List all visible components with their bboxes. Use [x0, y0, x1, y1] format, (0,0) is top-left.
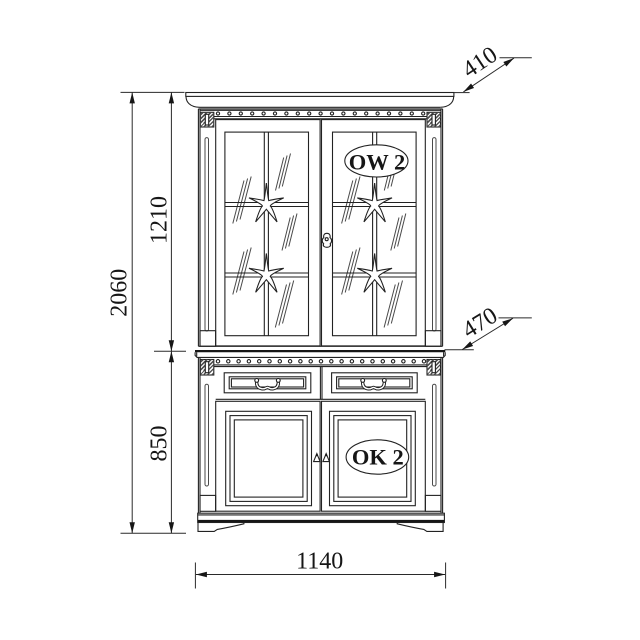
- svg-text:OK 2: OK 2: [352, 445, 404, 470]
- svg-text:2060: 2060: [106, 269, 132, 317]
- svg-text:850: 850: [147, 426, 173, 462]
- svg-text:1140: 1140: [296, 549, 343, 575]
- svg-text:1210: 1210: [147, 196, 173, 244]
- svg-text:OW 2: OW 2: [349, 149, 405, 174]
